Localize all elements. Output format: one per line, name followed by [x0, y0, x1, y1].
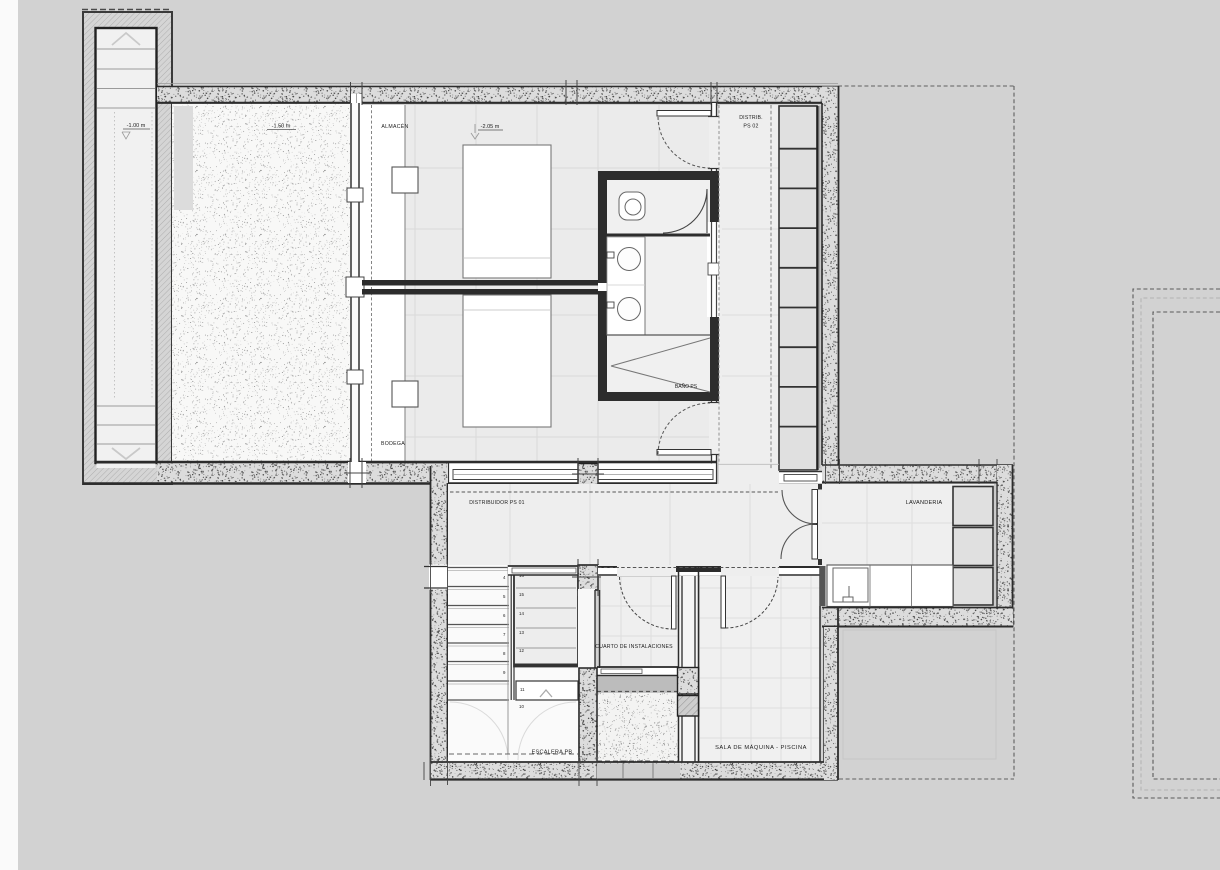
svg-text:10: 10 — [519, 704, 524, 709]
svg-text:BAÑO PS: BAÑO PS — [675, 383, 698, 390]
svg-text:13: 13 — [519, 630, 524, 635]
svg-text:SALA DE MÁQUINA - PISCINA: SALA DE MÁQUINA - PISCINA — [715, 744, 807, 751]
svg-text:PS 02: PS 02 — [743, 124, 758, 130]
svg-text:ALMACÉN: ALMACÉN — [381, 123, 408, 130]
svg-text:-1.00 m: -1.00 m — [127, 123, 146, 129]
svg-text:-2.05 m: -2.05 m — [481, 124, 500, 130]
svg-text:CUARTO DE INSTALACIONES: CUARTO DE INSTALACIONES — [595, 644, 673, 650]
svg-text:LAVANDERIA: LAVANDERIA — [906, 500, 943, 506]
svg-text:14: 14 — [519, 611, 524, 616]
svg-text:15: 15 — [519, 592, 524, 597]
svg-text:-1.50 m: -1.50 m — [272, 124, 291, 130]
svg-text:DISTRIB.: DISTRIB. — [739, 115, 763, 121]
svg-text:12: 12 — [519, 648, 524, 653]
svg-text:BODEGA: BODEGA — [381, 441, 405, 447]
svg-text:ESCALERA PB: ESCALERA PB — [532, 750, 573, 756]
svg-text:DISTRIBUIDOR PS 01: DISTRIBUIDOR PS 01 — [469, 500, 524, 506]
svg-text:11: 11 — [520, 687, 525, 692]
